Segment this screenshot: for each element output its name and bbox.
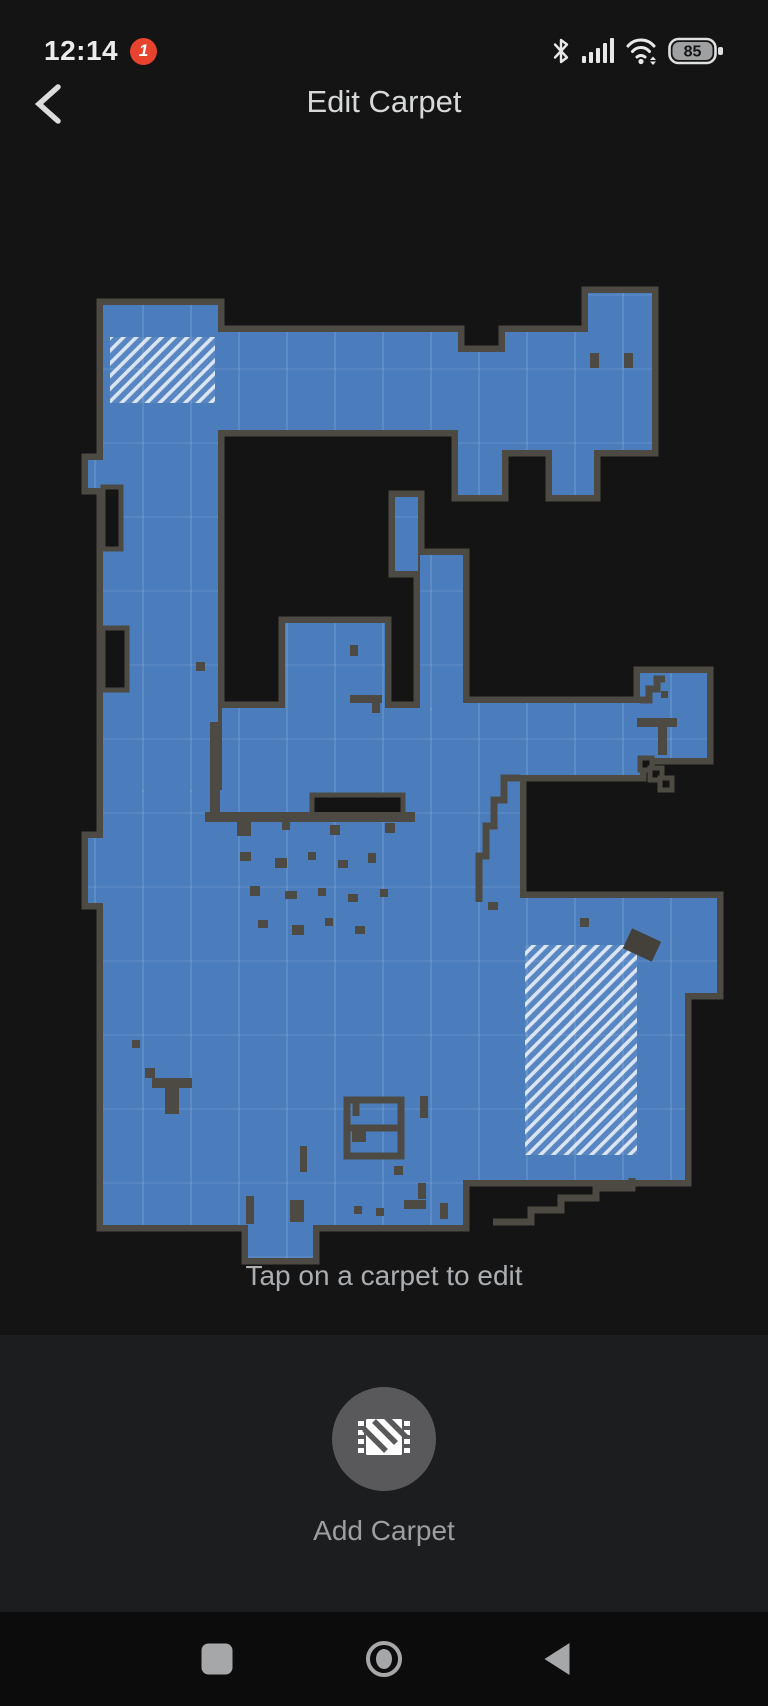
bottom-panel: Add Carpet — [0, 1335, 768, 1612]
carpet-region[interactable] — [525, 945, 637, 1155]
map-canvas[interactable] — [0, 0, 768, 1320]
screen: 12:14 1 — [0, 0, 768, 1706]
add-carpet-label: Add Carpet — [0, 1515, 768, 1547]
add-carpet-button[interactable] — [332, 1387, 436, 1491]
home-button[interactable] — [364, 1639, 404, 1679]
recents-button[interactable] — [202, 1644, 233, 1675]
floor-map — [0, 0, 768, 1320]
carpet-region[interactable] — [110, 337, 215, 403]
android-nav-bar — [0, 1612, 768, 1706]
map-hint: Tap on a carpet to edit — [0, 1260, 768, 1292]
carpet-icon — [358, 1416, 410, 1463]
back-nav-button[interactable] — [545, 1643, 570, 1675]
